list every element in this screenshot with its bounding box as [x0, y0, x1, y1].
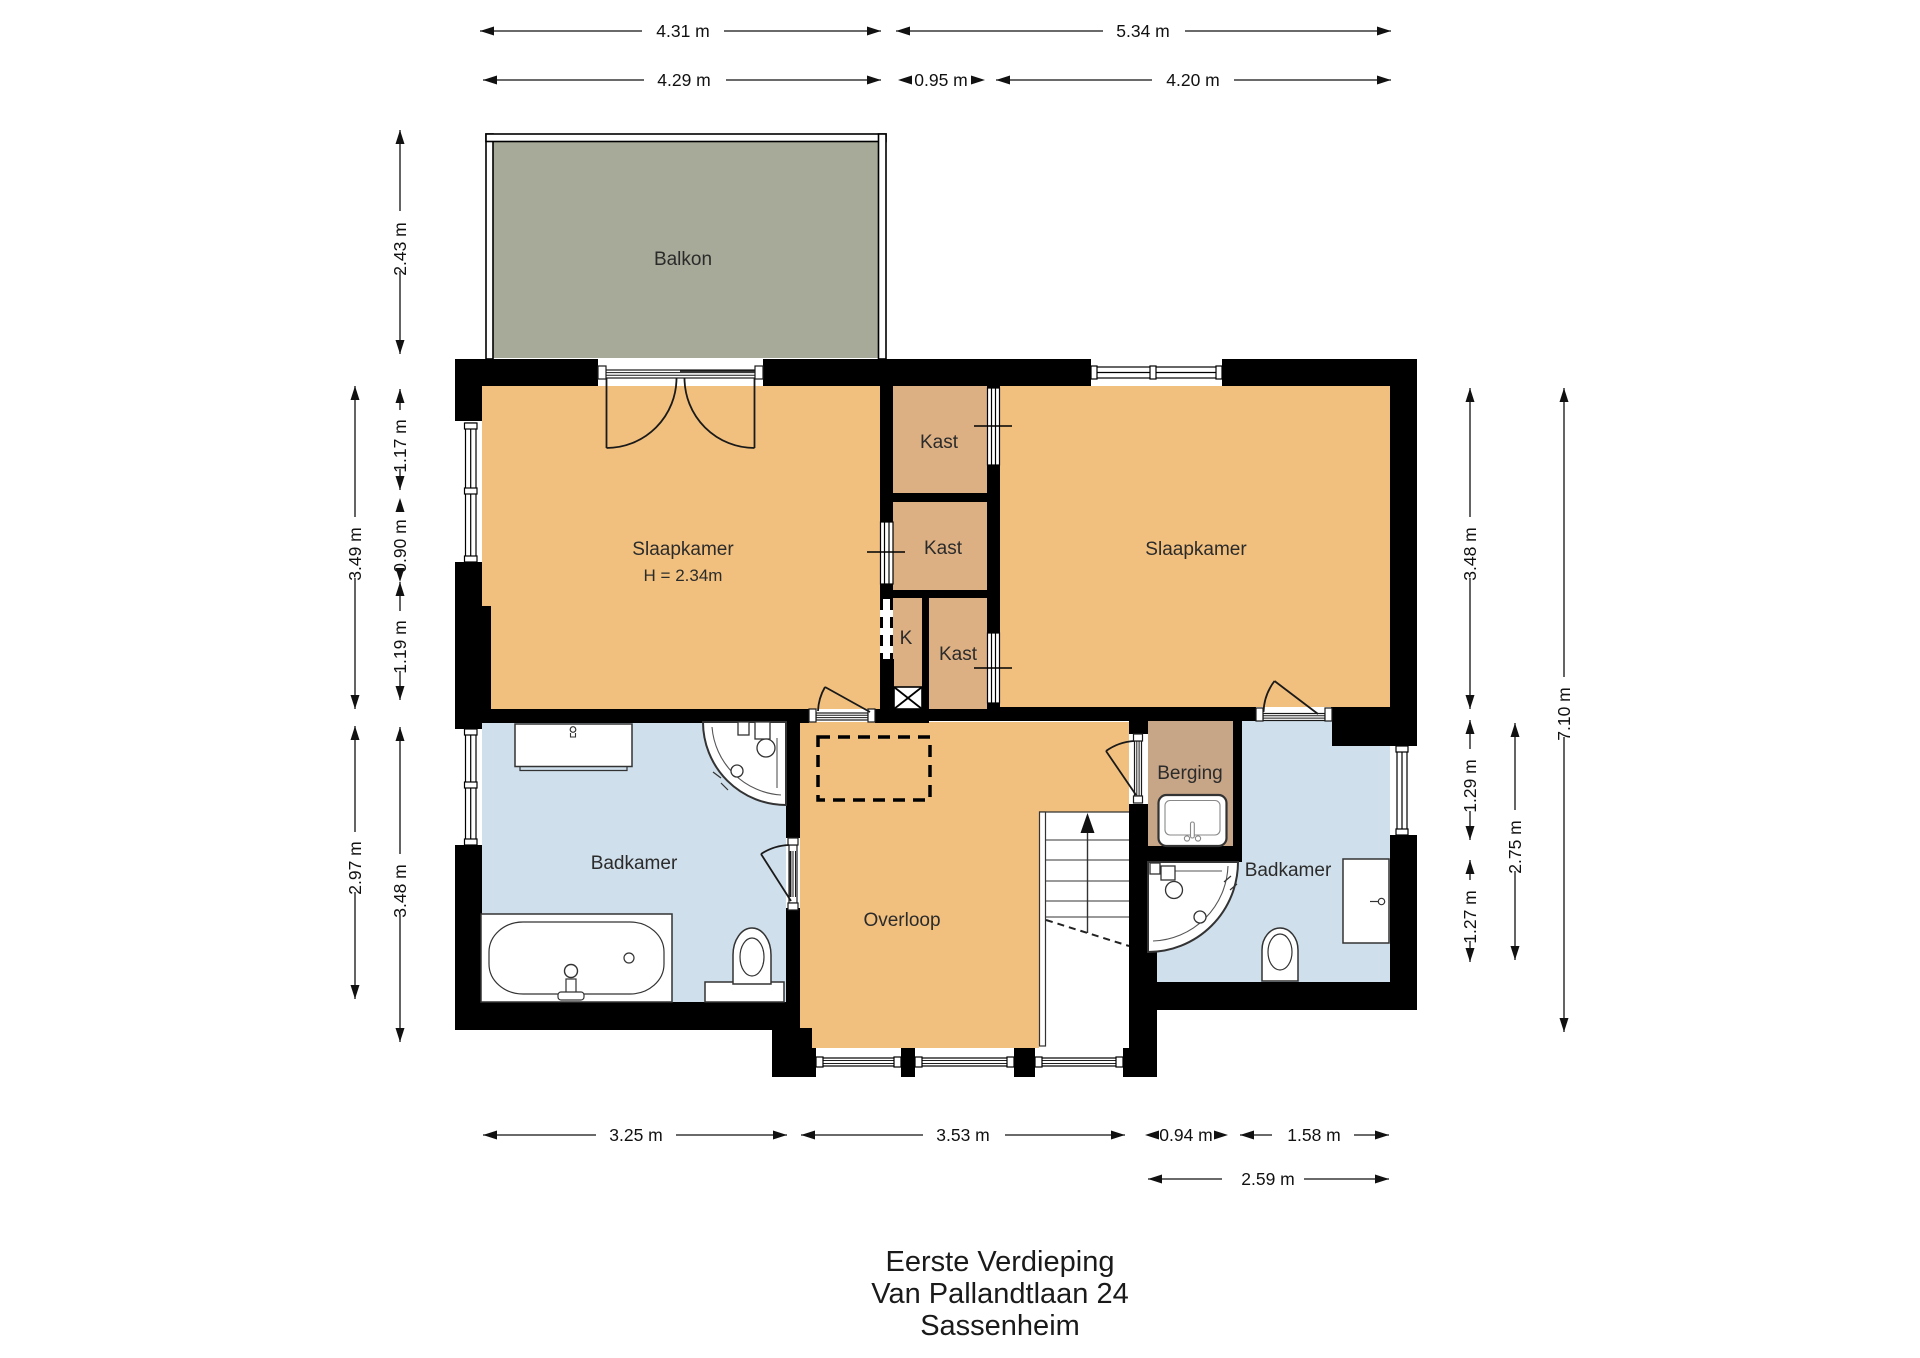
svg-text:1.58 m: 1.58 m — [1287, 1125, 1341, 1145]
svg-text:5.34 m: 5.34 m — [1116, 21, 1170, 41]
svg-text:Slaapkamer: Slaapkamer — [1145, 539, 1247, 560]
svg-text:Overloop: Overloop — [863, 910, 940, 931]
svg-text:0.94 m: 0.94 m — [1159, 1125, 1213, 1145]
svg-text:H = 2.34m: H = 2.34m — [644, 566, 723, 585]
svg-text:Kast: Kast — [924, 538, 963, 559]
svg-text:Kast: Kast — [920, 432, 959, 453]
svg-text:Balkon: Balkon — [654, 249, 712, 270]
svg-text:3.48 m: 3.48 m — [1460, 527, 1480, 581]
svg-text:Slaapkamer: Slaapkamer — [632, 539, 734, 560]
svg-text:3.48 m: 3.48 m — [390, 864, 410, 918]
svg-text:2.59 m: 2.59 m — [1241, 1169, 1295, 1189]
svg-text:Kast: Kast — [939, 644, 978, 665]
svg-text:Badkamer: Badkamer — [1245, 860, 1332, 881]
svg-text:3.53 m: 3.53 m — [936, 1125, 990, 1145]
svg-text:1.27 m: 1.27 m — [1460, 890, 1480, 944]
svg-text:Badkamer: Badkamer — [591, 853, 678, 874]
svg-text:3.49 m: 3.49 m — [345, 527, 365, 581]
svg-text:1.29 m: 1.29 m — [1460, 759, 1480, 813]
svg-text:7.10 m: 7.10 m — [1554, 687, 1574, 741]
svg-text:Sassenheim: Sassenheim — [920, 1310, 1080, 1342]
svg-text:1.17 m: 1.17 m — [390, 419, 410, 473]
svg-text:4.31 m: 4.31 m — [656, 21, 710, 41]
svg-text:0.90 m: 0.90 m — [390, 519, 410, 573]
svg-text:4.20 m: 4.20 m — [1166, 70, 1220, 90]
svg-text:3.25 m: 3.25 m — [609, 1125, 663, 1145]
svg-text:Van Pallandtlaan 24: Van Pallandtlaan 24 — [871, 1278, 1128, 1310]
svg-text:2.97 m: 2.97 m — [345, 841, 365, 895]
svg-text:Eerste Verdieping: Eerste Verdieping — [886, 1246, 1115, 1278]
svg-text:4.29 m: 4.29 m — [657, 70, 711, 90]
svg-text:1.19 m: 1.19 m — [390, 620, 410, 674]
svg-text:2.43 m: 2.43 m — [390, 222, 410, 276]
svg-text:0.95 m: 0.95 m — [914, 70, 968, 90]
svg-text:Berging: Berging — [1157, 763, 1223, 784]
svg-text:2.75 m: 2.75 m — [1505, 820, 1525, 874]
svg-text:K: K — [900, 628, 913, 649]
